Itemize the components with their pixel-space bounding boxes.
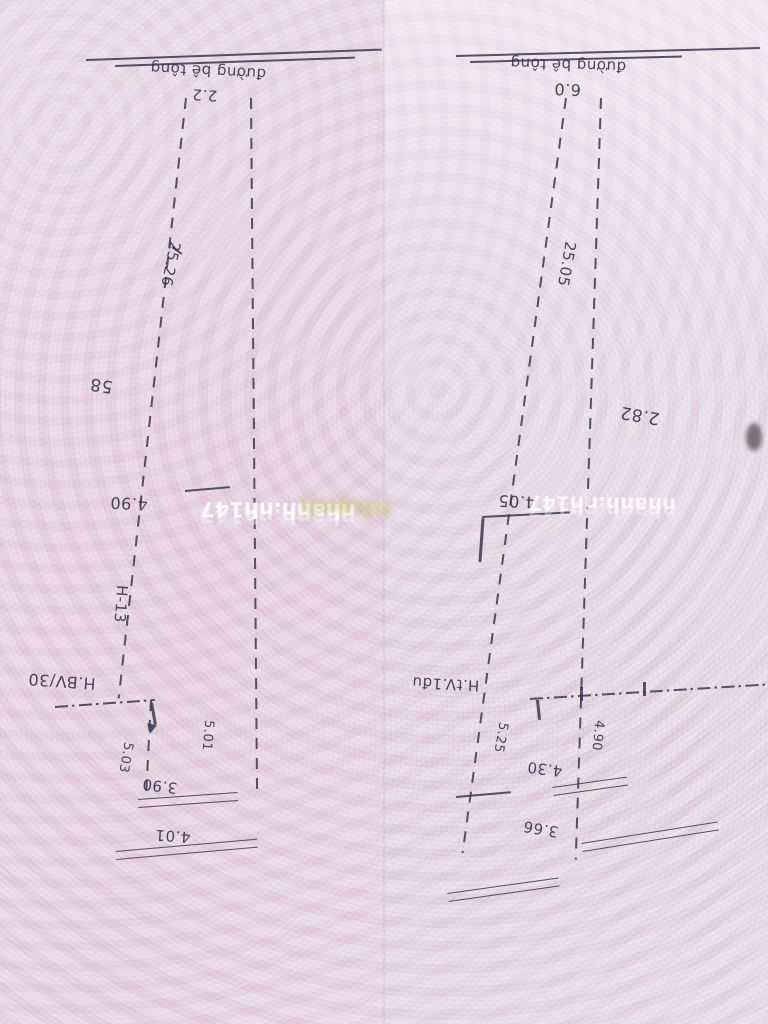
corner-drop — [536, 700, 541, 720]
watermark-right: nhanh.nh147 — [528, 491, 677, 518]
dashdot-tick-1 — [580, 687, 583, 701]
boundary-label: H.tV.1đu — [412, 673, 480, 694]
mid-corner-drop — [478, 518, 484, 562]
land-certificate-photo: đường bê tông 2.2 25.26 58 4.90 H-13 H.B… — [0, 0, 768, 1024]
double-line-2 — [581, 821, 719, 851]
yellow-smudge-watermark: nhanh — [300, 490, 393, 523]
double-line-3 — [447, 877, 559, 901]
side-length-label: 25.05 — [554, 240, 580, 288]
depth-right-label: 4.90 — [588, 719, 606, 751]
bottom-width-label: 3.66 — [522, 817, 560, 841]
road-frontage-width: 6.0 — [554, 80, 582, 100]
road-label: đường bê tông — [510, 54, 627, 76]
inner-width-label: 4.30 — [526, 758, 563, 780]
boundary-line-left — [462, 98, 567, 853]
single-line — [456, 791, 511, 798]
boundary-dashdot-line — [530, 683, 768, 700]
depth-left-label: 5.25 — [490, 721, 510, 754]
adjacent-parcel-number: 2.82 — [619, 402, 662, 429]
road-edge-line — [456, 47, 760, 57]
dashdot-tick-2 — [643, 682, 646, 696]
ink-blot — [746, 423, 762, 451]
double-line-1 — [552, 777, 628, 796]
